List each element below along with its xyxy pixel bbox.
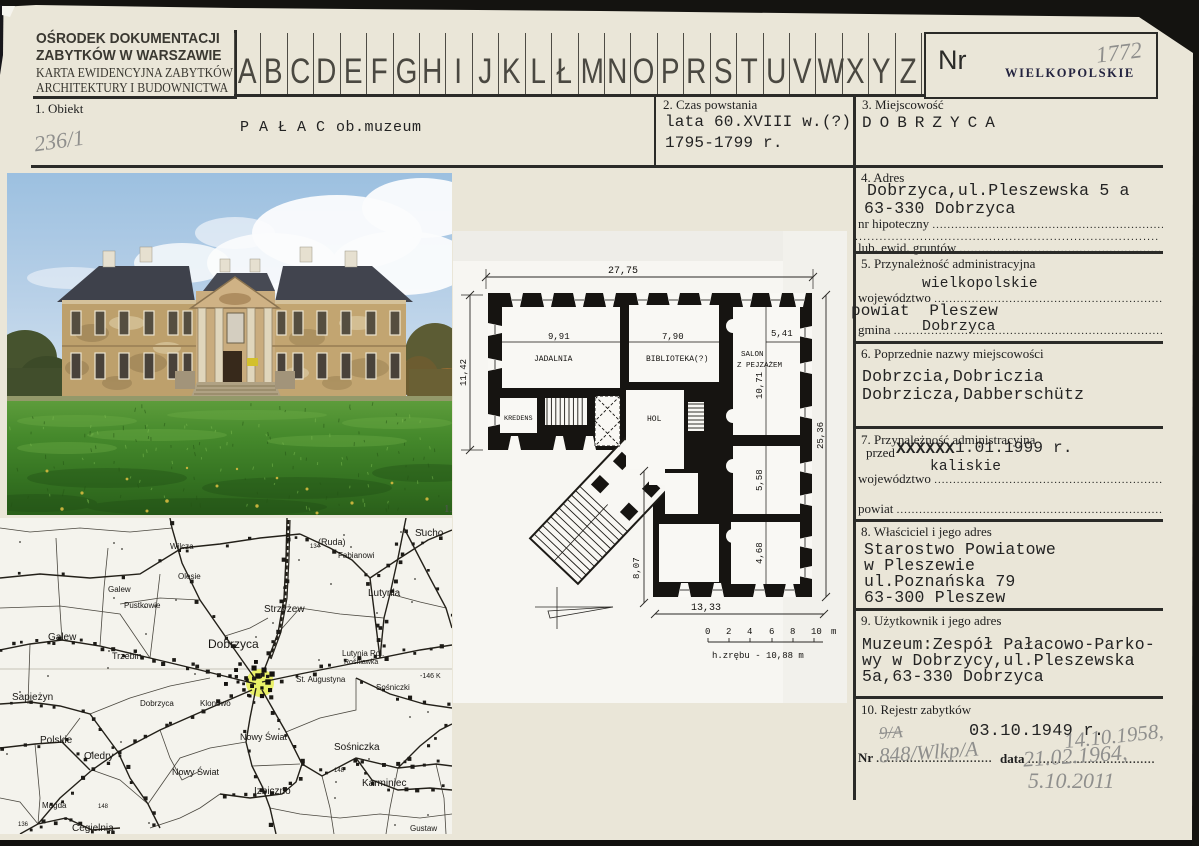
- svg-text:8: 8: [790, 627, 795, 637]
- svg-text:Z PEJZAŻEM: Z PEJZAŻEM: [737, 361, 783, 370]
- svg-text:9,91: 9,91: [548, 332, 570, 342]
- svg-text:Galew: Galew: [108, 585, 131, 594]
- svg-text:Sośniczki: Sośniczki: [376, 683, 410, 692]
- svg-text:Sośniczka: Sośniczka: [334, 742, 380, 753]
- svg-text:(Ruda): (Ruda): [318, 537, 346, 547]
- svg-text:JADALNIA: JADALNIA: [534, 355, 573, 364]
- svg-text:10,71: 10,71: [755, 372, 765, 399]
- svg-text:5,41: 5,41: [771, 329, 793, 339]
- svg-text:134: 134: [310, 544, 321, 550]
- svg-text:4,68: 4,68: [755, 542, 765, 564]
- svg-text:Nowy Świat: Nowy Świat: [240, 731, 288, 742]
- svg-text:-146 K: -146 K: [420, 673, 441, 680]
- svg-text:Rošniawka: Rošniawka: [344, 659, 378, 666]
- svg-text:Klonowo: Klonowo: [200, 699, 231, 708]
- svg-text:m: m: [831, 627, 836, 637]
- svg-text:Wilcza: Wilcza: [170, 542, 194, 551]
- svg-text:St. Augustyna: St. Augustyna: [296, 675, 346, 684]
- svg-text:Lutynia: Lutynia: [368, 588, 401, 599]
- svg-text:Karminiec: Karminiec: [362, 778, 406, 789]
- svg-text:7,90: 7,90: [662, 332, 684, 342]
- svg-text:5,58: 5,58: [755, 469, 765, 491]
- svg-text:Izbiczno: Izbiczno: [254, 786, 291, 797]
- svg-text:Strzyżew: Strzyżew: [264, 604, 305, 615]
- svg-text:Galew: Galew: [48, 632, 77, 643]
- svg-text:Sucho: Sucho: [415, 528, 444, 539]
- svg-text:-148: -148: [332, 768, 345, 774]
- svg-text:h.zrębu - 10,88 m: h.zrębu - 10,88 m: [712, 651, 804, 661]
- svg-text:2: 2: [726, 627, 731, 637]
- svg-text:8,07: 8,07: [632, 557, 642, 579]
- svg-text:BIBLIOTEKA(?): BIBLIOTEKA(?): [646, 355, 708, 364]
- svg-text:Nowy Świat: Nowy Świat: [172, 766, 220, 777]
- svg-text:Polskie: Polskie: [40, 735, 73, 746]
- svg-text:4: 4: [747, 627, 752, 637]
- svg-text:11,42: 11,42: [459, 359, 469, 386]
- svg-text:KREDENS: KREDENS: [504, 415, 533, 423]
- svg-text:136: 136: [18, 822, 29, 828]
- svg-text:Trzebin: Trzebin: [112, 651, 142, 661]
- svg-text:Fabianowi: Fabianowi: [338, 551, 375, 560]
- svg-text:Sapieżyn: Sapieżyn: [12, 692, 53, 703]
- svg-text:Magda: Magda: [42, 801, 67, 810]
- svg-text:0: 0: [705, 627, 710, 637]
- svg-text:6: 6: [769, 627, 774, 637]
- svg-text:Cegielnia: Cegielnia: [72, 823, 114, 834]
- svg-text:148: 148: [98, 804, 109, 810]
- svg-text:Dobrzyca: Dobrzyca: [208, 637, 259, 651]
- svg-text:Dobrzyca: Dobrzyca: [140, 699, 174, 708]
- svg-text:27,75: 27,75: [608, 266, 638, 277]
- svg-text:13,33: 13,33: [691, 603, 721, 614]
- svg-text:HOL: HOL: [647, 415, 662, 424]
- svg-text:25,36: 25,36: [816, 422, 826, 449]
- svg-text:SALON: SALON: [741, 351, 764, 359]
- svg-text:Lutynia Rol.: Lutynia Rol.: [342, 649, 384, 658]
- svg-text:Olesie: Olesie: [178, 572, 201, 581]
- svg-text:Gustaw: Gustaw: [410, 824, 437, 833]
- svg-text:10: 10: [811, 627, 822, 637]
- svg-text:Pustkowie: Pustkowie: [124, 601, 161, 610]
- svg-text:Oledry: Oledry: [84, 751, 113, 762]
